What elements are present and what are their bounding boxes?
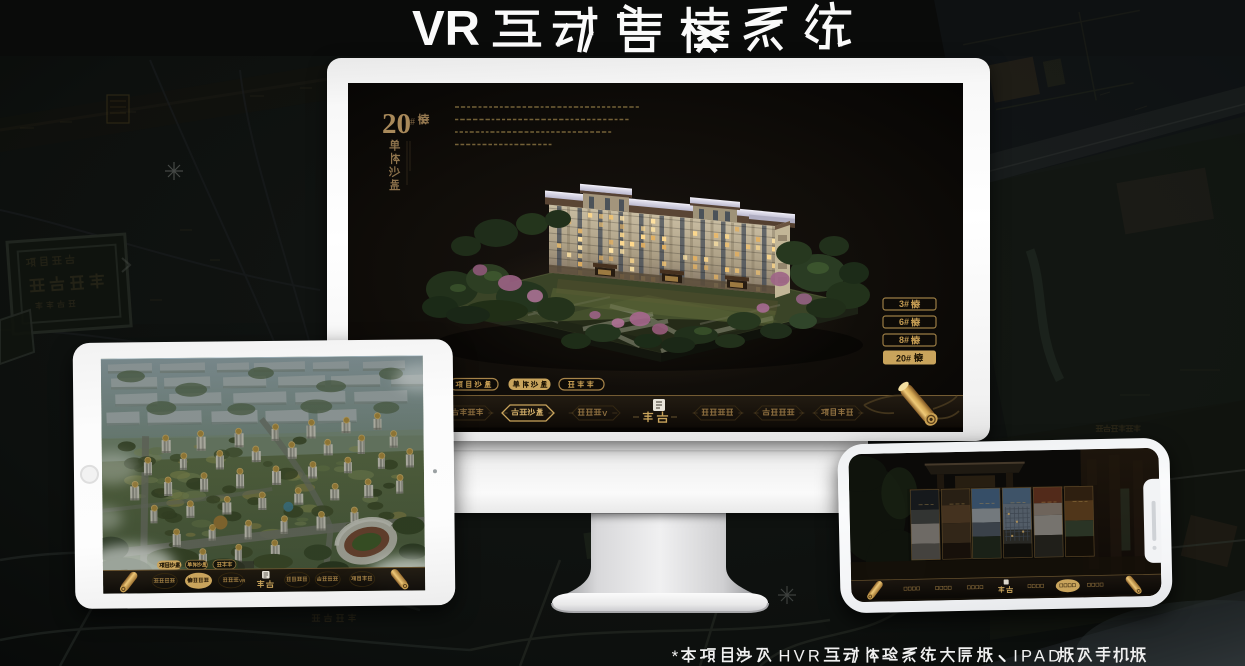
svg-text:IPAD: IPAD bbox=[1013, 648, 1063, 666]
svg-text:HVR: HVR bbox=[779, 648, 823, 666]
svg-text:*: * bbox=[672, 647, 679, 666]
svg-text:VR: VR bbox=[412, 2, 480, 56]
